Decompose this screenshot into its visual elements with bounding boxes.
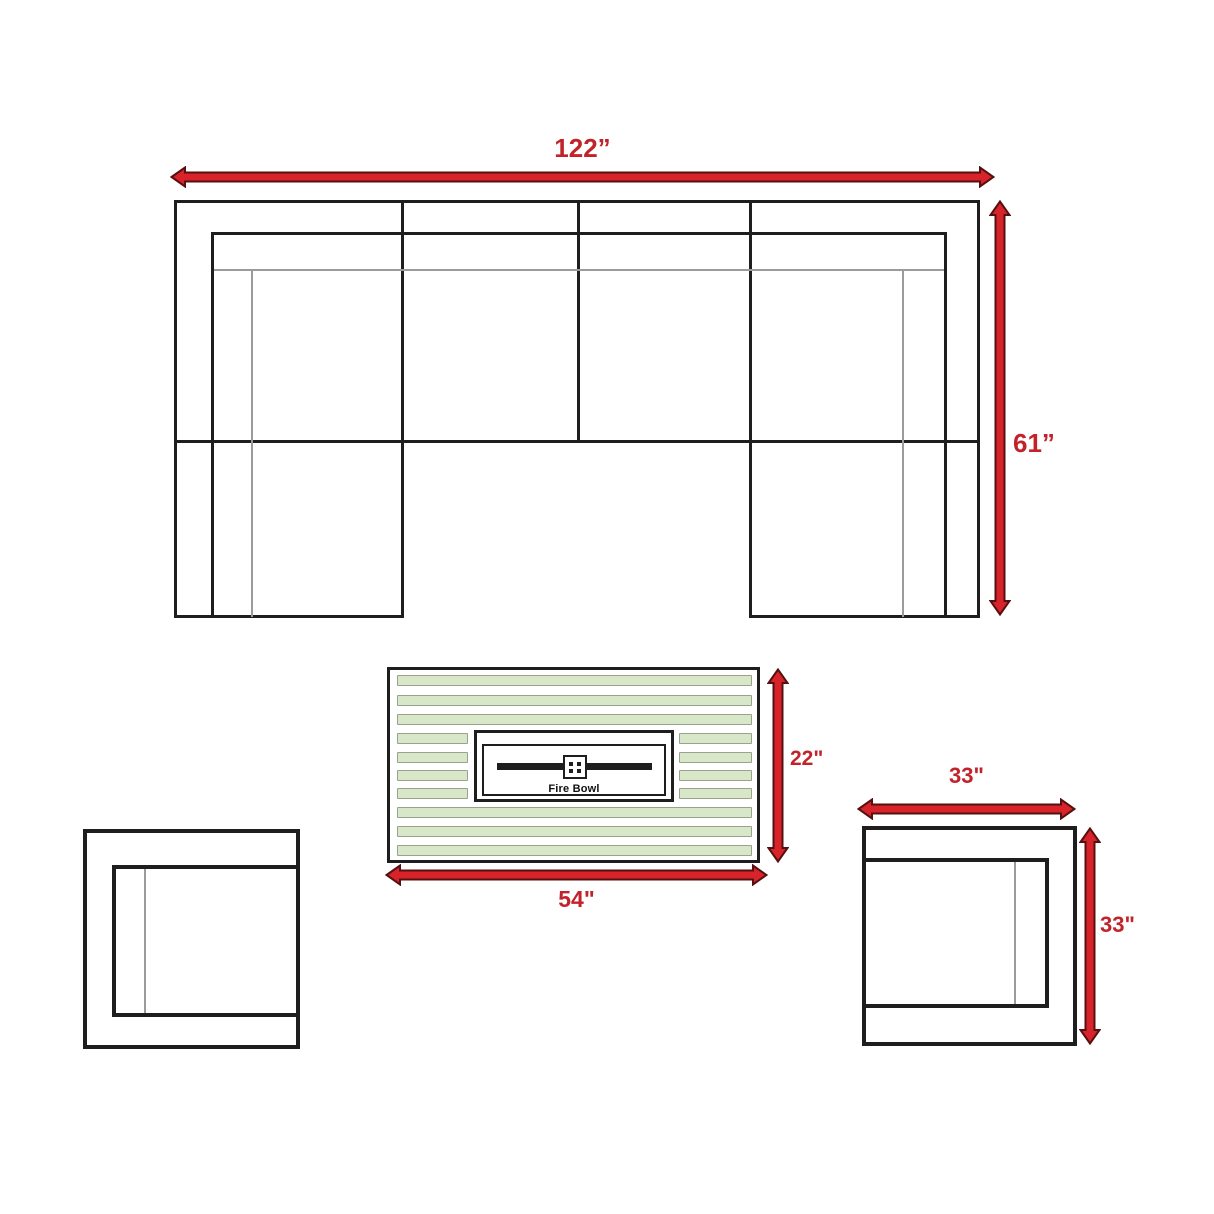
right-armchair-cushion-edge xyxy=(1014,862,1016,1004)
table-slat xyxy=(679,770,752,781)
table-slat xyxy=(397,733,468,744)
table-slat xyxy=(397,826,752,837)
right-armchair-seat-line xyxy=(862,858,1049,1008)
chair-width-arrow xyxy=(857,798,1076,820)
sofa-cushion-edge-left xyxy=(251,270,253,617)
table-slat xyxy=(397,675,752,686)
sofa-height-arrow xyxy=(989,200,1011,616)
chair-height-label: 33" xyxy=(1100,913,1135,937)
table-slat xyxy=(397,807,752,818)
fire-pit-table-diagram: Fire Bowl xyxy=(387,667,760,863)
left-armchair-seat-line xyxy=(112,865,300,1017)
left-armchair-cushion-edge xyxy=(144,869,146,1013)
table-slat xyxy=(397,788,468,799)
table-height-label: 22" xyxy=(790,747,823,770)
sofa-width-arrow xyxy=(170,166,995,188)
table-slat xyxy=(397,714,752,725)
table-slat xyxy=(679,788,752,799)
chair-height-arrow xyxy=(1079,827,1101,1045)
fire-bowl-label: Fire Bowl xyxy=(477,783,671,795)
table-slat xyxy=(397,752,468,763)
sofa-backrest-line xyxy=(211,232,947,618)
table-width-arrow xyxy=(385,864,768,886)
sofa-cushion-edge-top xyxy=(214,269,944,271)
table-height-arrow xyxy=(767,668,789,863)
fire-bowl-box: Fire Bowl xyxy=(474,730,674,802)
table-width-label: 54" xyxy=(385,887,768,912)
sofa-height-label: 61” xyxy=(1013,429,1055,458)
burner-icon xyxy=(563,755,587,779)
chair-width-label: 33" xyxy=(857,764,1076,788)
furniture-dimension-diagram: 122” 61” xyxy=(0,0,1214,1214)
table-slat xyxy=(679,733,752,744)
sofa-cushion-edge-right xyxy=(902,270,904,617)
table-slat xyxy=(679,752,752,763)
sofa-width-label: 122” xyxy=(170,134,995,163)
table-slat xyxy=(397,845,752,856)
table-slat xyxy=(397,770,468,781)
table-slat xyxy=(397,695,752,706)
